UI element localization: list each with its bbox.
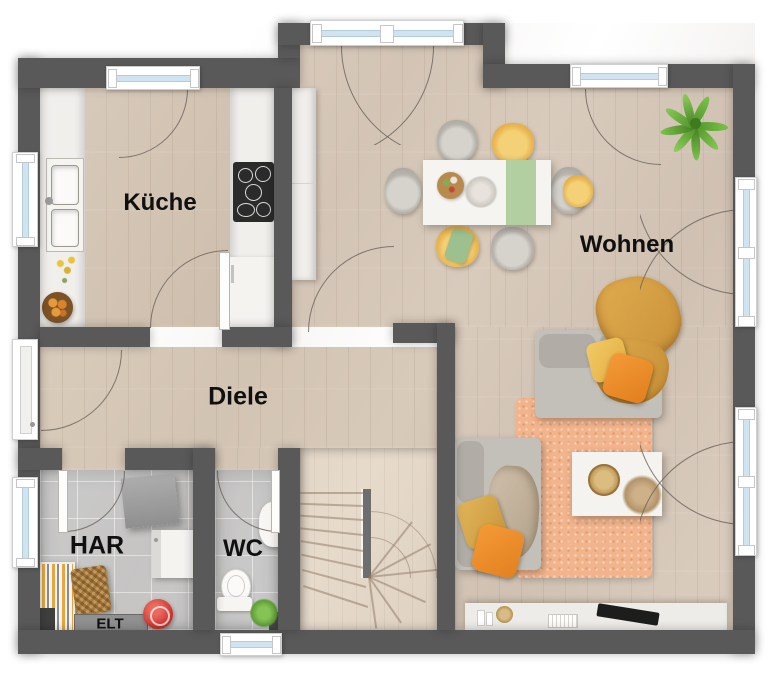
sink-basin: [51, 165, 79, 205]
window-glass: [22, 485, 29, 560]
wc-plant: [250, 598, 278, 628]
wall-kitchen-hall-left: [40, 327, 150, 347]
window-cap: [738, 316, 755, 327]
window-cap: [572, 67, 581, 86]
wall-bottom: [18, 630, 755, 654]
table-flowers: [464, 176, 498, 208]
stair-tread: [300, 492, 363, 494]
room-label-kueche: Küche: [123, 189, 196, 217]
room-label-wc: WC: [223, 535, 263, 563]
palm-center: [690, 118, 701, 129]
wall-stairs-living: [437, 323, 455, 630]
window-kitchen-left: [12, 152, 38, 247]
window-cap: [272, 636, 281, 654]
window-cap: [16, 479, 35, 488]
door-handle-icon: [30, 422, 35, 427]
window-glass: [578, 73, 660, 80]
window-cap: [453, 24, 463, 43]
table-runner: [506, 160, 536, 225]
floor-doorway-wc: [215, 448, 278, 470]
room-label-har: HAR: [70, 532, 124, 561]
window-cap: [190, 69, 199, 88]
entrance-door: [12, 339, 38, 440]
fridge: [225, 257, 278, 329]
decor-vase: [486, 612, 493, 626]
wc-door-leaf: [271, 470, 280, 533]
vacuum-robot: [143, 599, 173, 629]
dining-chair-yellow: [563, 175, 593, 207]
window-cap: [108, 69, 117, 88]
toilet-tank: [217, 597, 252, 611]
decor-vase: [477, 610, 485, 626]
window-cap: [738, 409, 755, 420]
vacuum-detail: [150, 606, 170, 626]
fruit-bowl: [42, 292, 73, 323]
sink-basin: [51, 209, 79, 247]
room-label-diele: Diele: [208, 383, 268, 412]
wall-kitchen-living: [274, 88, 292, 347]
salad-bowl: [437, 172, 464, 199]
books-stack: [548, 614, 578, 628]
window-glass: [22, 160, 29, 239]
faucet-icon: [45, 197, 53, 205]
french-door-right-upper: [735, 177, 757, 327]
sofa-back-cushion: [457, 441, 484, 503]
decor-basket-icon: [496, 606, 513, 623]
window-glass: [114, 75, 192, 82]
window-cap: [16, 237, 35, 246]
wall-har-wc-divider: [193, 448, 215, 630]
terrace-door-arcs: [286, 45, 504, 145]
window-cap: [312, 24, 322, 43]
door-panel: [20, 346, 32, 434]
window-kitchen-top: [106, 66, 200, 90]
dining-chair-gray: [385, 168, 421, 214]
window-cap: [738, 179, 755, 190]
room-label-wohnen: Wohnen: [580, 231, 674, 259]
window-cap: [658, 67, 667, 86]
door-mullion: [738, 247, 755, 259]
laundry-basket: [70, 565, 112, 617]
french-door-right-lower: [735, 407, 757, 556]
window-cap: [16, 154, 35, 163]
tv-flatscreen: [596, 603, 659, 626]
window-cap: [16, 558, 35, 567]
washer-knob-icon: [154, 538, 158, 542]
wall-right: [733, 64, 755, 654]
window-cap: [222, 636, 231, 654]
wall-har-top-left: [18, 448, 62, 470]
door-mullion: [738, 476, 755, 488]
burner-icon: [255, 166, 271, 182]
room-label-elt: ELT: [96, 616, 123, 633]
dining-chair-gray: [491, 227, 534, 270]
burner-icon: [256, 202, 271, 217]
cooktop: [233, 162, 274, 222]
palm-plant: [665, 95, 729, 159]
door-mullion: [380, 25, 394, 43]
terrace-door-top: [310, 20, 464, 46]
har-door-leaf: [58, 470, 68, 533]
burner-icon: [245, 184, 262, 201]
burner-icon: [238, 168, 253, 183]
wall-kitchen-hall-right: [222, 327, 292, 347]
window-cap: [738, 545, 755, 556]
floor-plan: Küche Wohnen Diele HAR WC ELT: [0, 0, 775, 676]
burner-icon: [237, 203, 255, 217]
floor-doorway-har: [62, 448, 125, 470]
washing-machine: [152, 530, 195, 578]
window-living-top: [570, 64, 668, 88]
kitchen-door-leaf: [219, 252, 230, 330]
window-har-left: [12, 477, 38, 568]
storage-box: [121, 473, 180, 528]
wall-wc-stairs: [278, 448, 300, 630]
tv-sideboard: [465, 603, 727, 632]
french-door-arcs-lower: [640, 411, 740, 553]
fridge-handle: [231, 265, 234, 283]
flower-vase: [52, 255, 80, 289]
toilet-seat-line: [227, 575, 245, 597]
window-wc-bottom: [220, 633, 282, 656]
decor-tray: [588, 464, 620, 496]
kitchen-sink-unit: [46, 158, 84, 252]
window-glass: [228, 641, 275, 648]
cabinet-divider: [292, 183, 316, 184]
